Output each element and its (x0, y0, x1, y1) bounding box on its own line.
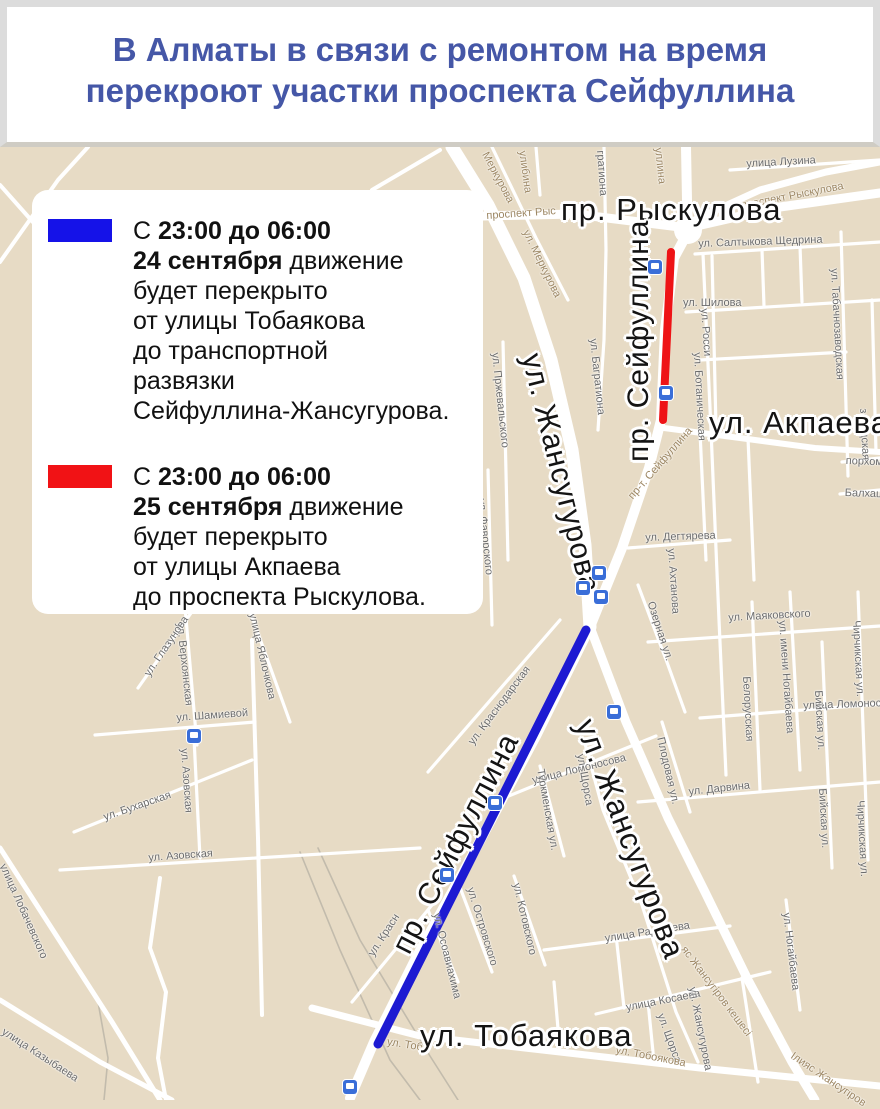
header: В Алматы в связи с ремонтом на времяпере… (0, 0, 880, 147)
minor-street (648, 626, 880, 642)
minor-street (252, 640, 262, 1015)
legend-card: С 23:00 до 06:0024 сентября движениебуде… (32, 190, 483, 614)
minor-street (503, 342, 508, 560)
major-street (690, 162, 880, 222)
minor-street (841, 232, 848, 476)
minor-street (686, 300, 880, 312)
minor-street (194, 738, 200, 858)
minor-street (840, 490, 880, 494)
roundabout (674, 216, 702, 244)
minor-street (648, 1002, 654, 1062)
minor-street (712, 256, 716, 428)
minor-street (598, 147, 606, 430)
closure-25-september (663, 252, 671, 420)
minor-street (185, 607, 197, 745)
page-title: В Алматы в связи с ремонтом на времяпере… (7, 7, 873, 111)
minor-street (428, 620, 560, 772)
minor-street (0, 848, 160, 1100)
minor-street (0, 1000, 172, 1100)
minor-street (700, 352, 846, 360)
minor-street (700, 704, 880, 718)
minor-street (536, 147, 540, 195)
minor-street (514, 876, 545, 965)
legend-text-1: С 23:00 до 06:0024 сентября движениебуде… (133, 216, 449, 426)
legend-swatch-2 (48, 465, 112, 488)
major-street (483, 214, 688, 228)
legend-item-2: С 23:00 до 06:0025 сентября движениебуде… (48, 462, 473, 612)
minor-street (458, 882, 492, 972)
minor-street (872, 300, 876, 452)
minor-street (822, 642, 832, 868)
minor-street (95, 722, 255, 735)
minor-street (372, 150, 440, 190)
minor-street (554, 982, 560, 1052)
minor-street (762, 250, 764, 306)
legend-swatch-1 (48, 219, 112, 242)
minor-street (786, 900, 800, 1010)
legend-text-2: С 23:00 до 06:0025 сентября движениебуде… (133, 462, 426, 612)
major-street (312, 1008, 880, 1086)
minor-street (695, 242, 880, 254)
minor-street (488, 470, 492, 625)
title-line-1: В Алматы в связи с ремонтом на время (113, 31, 768, 68)
minor-street (748, 438, 754, 580)
minor-street (858, 592, 868, 860)
major-street (686, 147, 688, 226)
minor-street (638, 585, 685, 712)
minor-street (150, 878, 166, 1100)
minor-street (752, 602, 760, 790)
minor-street (800, 246, 802, 302)
minor-street (790, 592, 800, 770)
infographic-page: улица Лузинапроспект Рыскуловапроспект Р… (0, 0, 880, 1100)
minor-street (60, 848, 420, 870)
title-line-2: перекроют участки проспекта Сейфуллина (86, 72, 795, 109)
minor-street (616, 935, 624, 1008)
railway-line (318, 848, 458, 1100)
minor-street (74, 760, 252, 832)
legend-item-1: С 23:00 до 06:0024 сентября движениебуде… (48, 216, 473, 426)
minor-street (544, 926, 730, 950)
